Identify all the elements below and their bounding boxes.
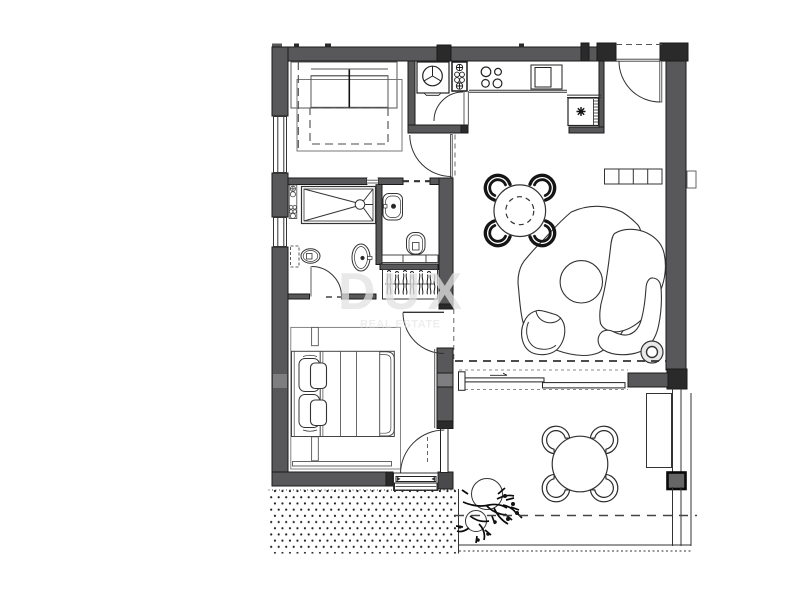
svg-text:REAL ESTATE: REAL ESTATE	[360, 319, 440, 331]
svg-text:DUX: DUX	[338, 263, 462, 321]
